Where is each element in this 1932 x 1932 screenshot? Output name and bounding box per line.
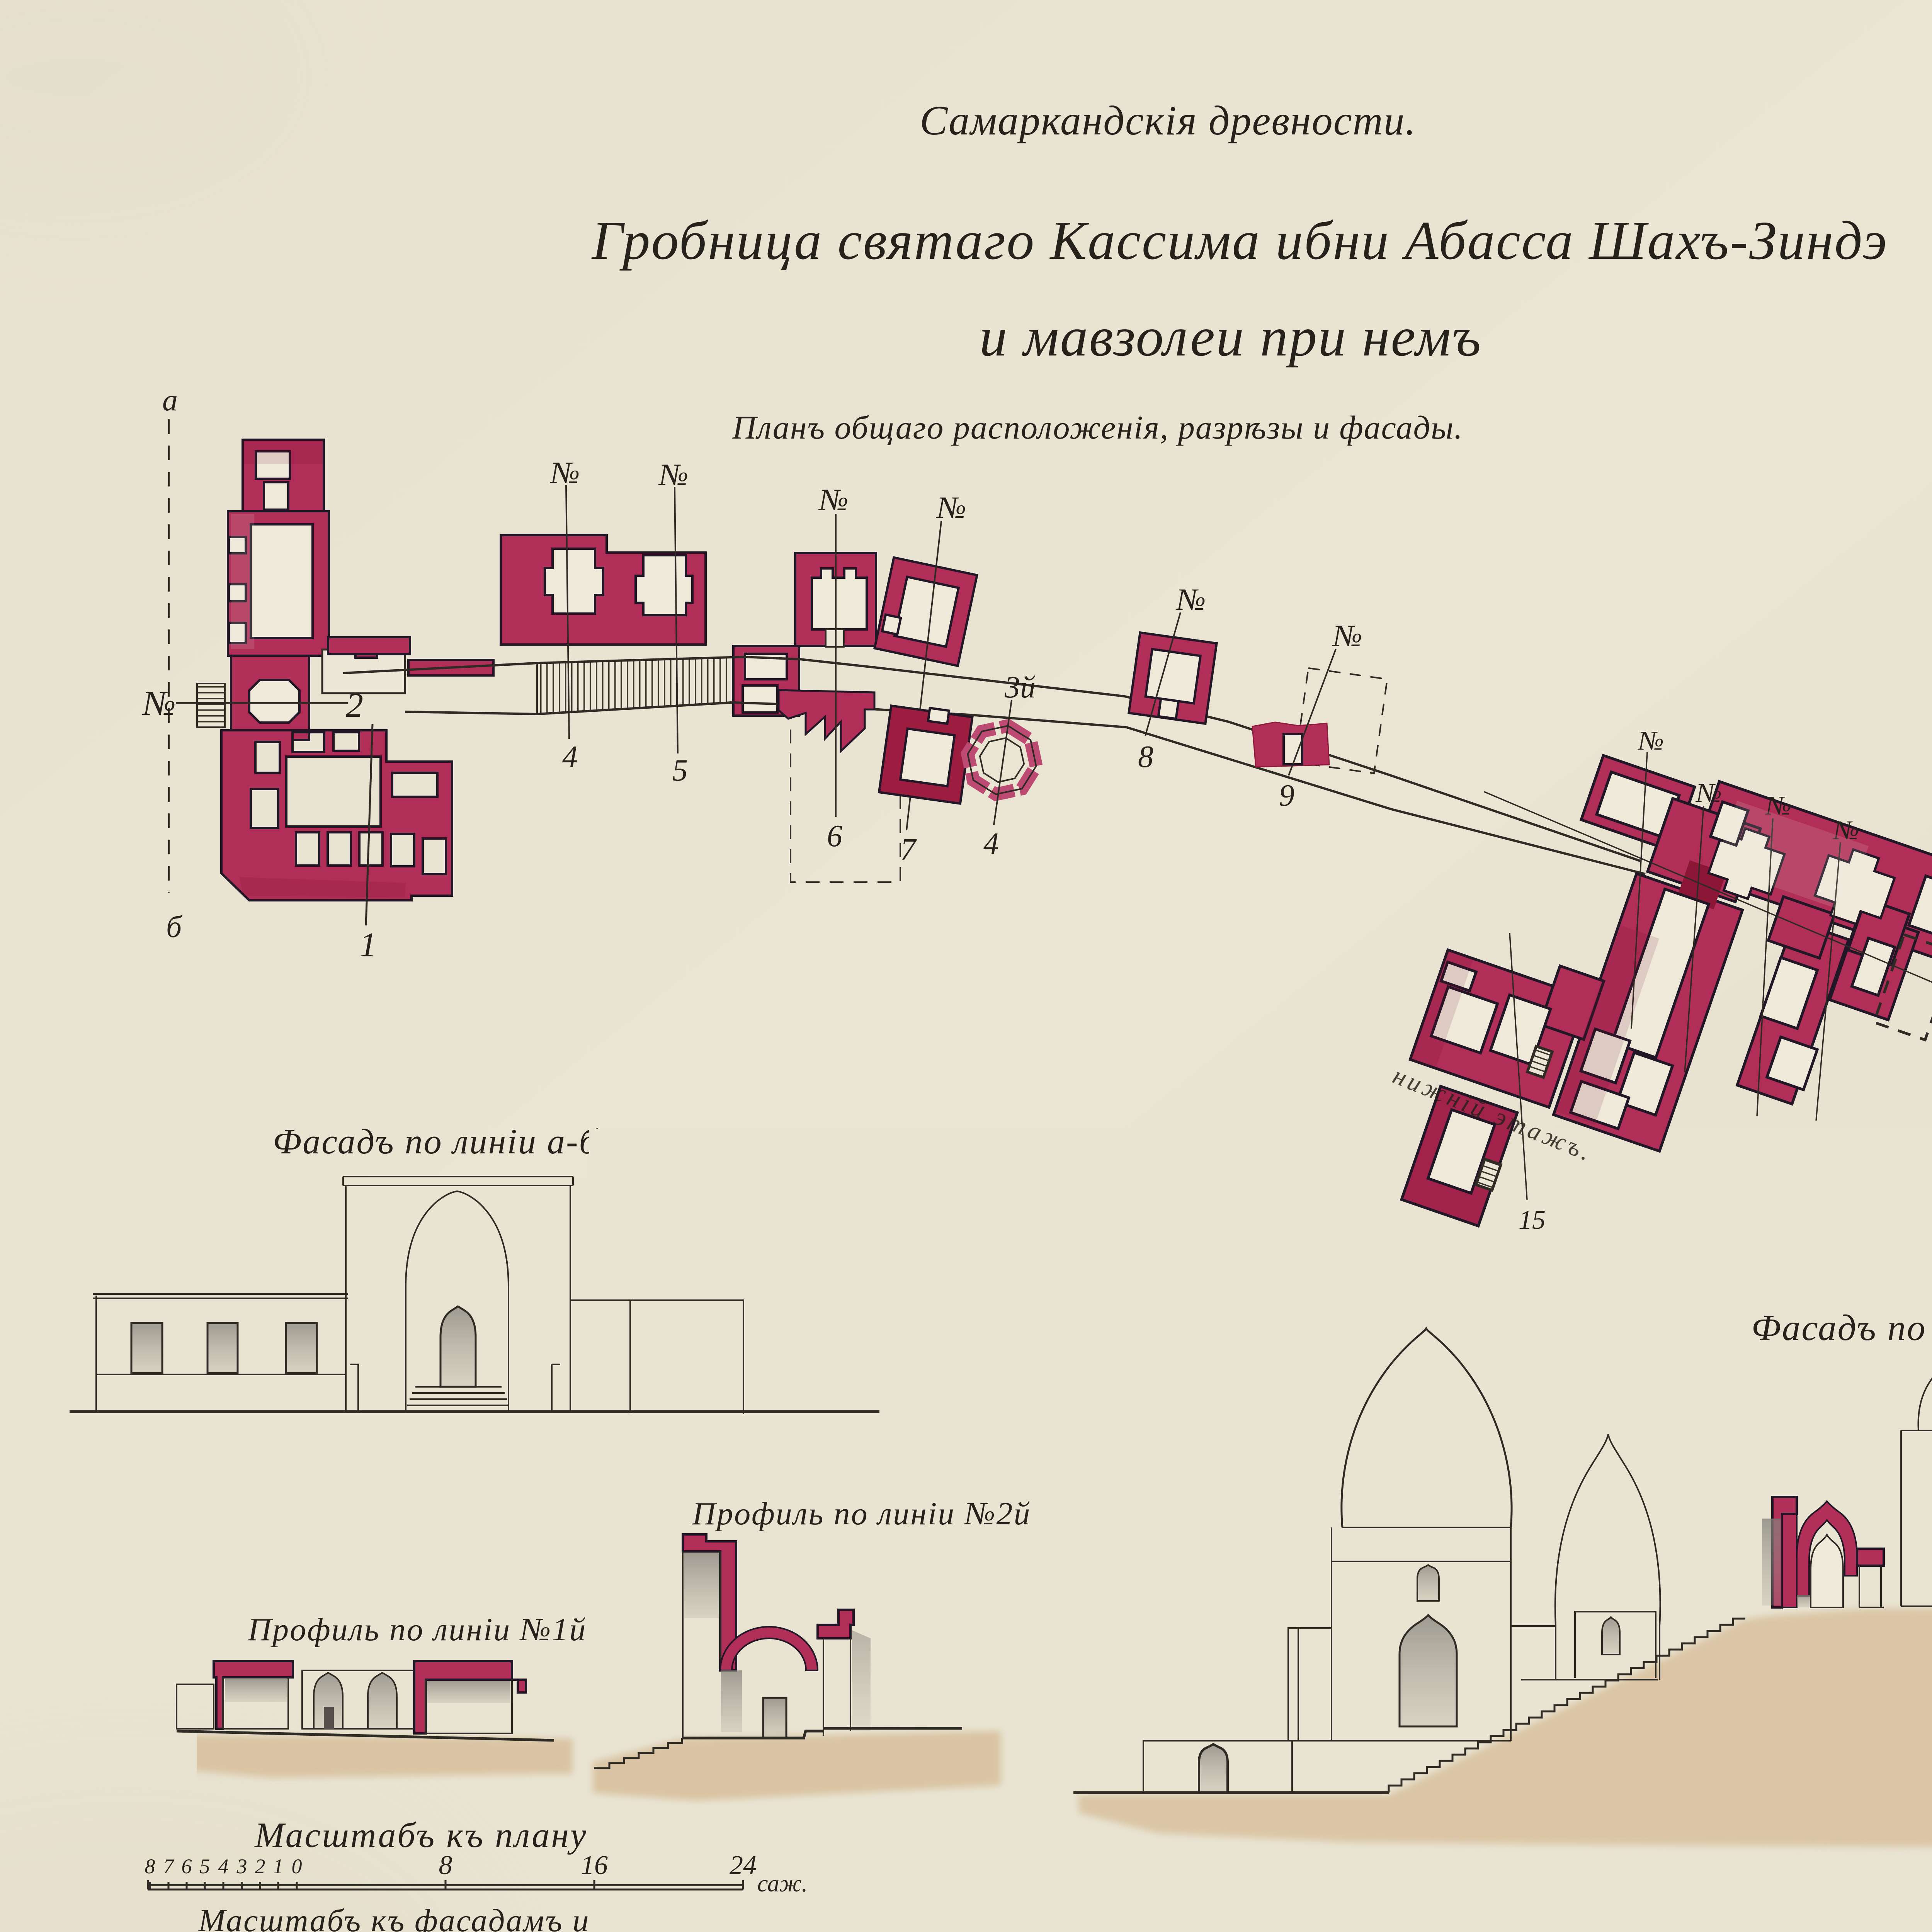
svg-text:саж.: саж. [757, 1871, 808, 1897]
svg-text:а: а [162, 383, 178, 417]
svg-text:Планъ общаго расположенія, раз: Планъ общаго расположенія, разрѣзы и фас… [732, 409, 1463, 446]
svg-text:№: № [1695, 778, 1722, 808]
svg-text:№: № [1332, 619, 1362, 653]
svg-text:3: 3 [236, 1855, 247, 1878]
svg-text:2: 2 [255, 1855, 265, 1878]
svg-text:3й: 3й [1004, 670, 1036, 704]
svg-text:№: № [1175, 583, 1206, 617]
svg-text:6: 6 [182, 1855, 192, 1878]
svg-text:Масштабъ къ фасадамъ и: Масштабъ къ фасадамъ и [198, 1903, 590, 1932]
svg-text:и мавзолеи при немъ: и мавзолеи при немъ [980, 306, 1482, 368]
svg-text:б: б [166, 910, 183, 944]
svg-text:5: 5 [200, 1855, 210, 1878]
svg-text:4: 4 [562, 740, 578, 774]
svg-text:15: 15 [1519, 1205, 1546, 1235]
svg-text:24: 24 [730, 1850, 757, 1880]
svg-text:№: № [1637, 726, 1664, 756]
svg-text:5: 5 [672, 753, 688, 787]
svg-text:4: 4 [218, 1855, 229, 1878]
svg-text:2: 2 [346, 686, 363, 724]
svg-text:№: № [142, 684, 176, 723]
svg-text:8: 8 [1138, 740, 1153, 774]
svg-text:№: № [936, 491, 966, 525]
svg-text:8: 8 [145, 1855, 155, 1878]
svg-text:Профиль по линіи №2й: Профиль по линіи №2й [692, 1496, 1031, 1532]
svg-text:Фасадъ по линіи а-б.: Фасадъ по линіи а-б. [273, 1122, 608, 1161]
svg-text:7: 7 [163, 1855, 175, 1878]
svg-text:Профиль по линіи №1й: Профиль по линіи №1й [248, 1612, 587, 1648]
svg-text:4: 4 [983, 827, 999, 861]
svg-text:0: 0 [292, 1855, 302, 1878]
svg-text:№: № [658, 458, 688, 492]
svg-text:6: 6 [827, 819, 842, 853]
svg-text:Гробница святаго Кассима ибни: Гробница святаго Кассима ибни Абасса Шах… [591, 210, 1888, 271]
svg-text:№: № [818, 483, 848, 517]
svg-text:7: 7 [900, 833, 917, 867]
svg-text:Масштабъ къ плану: Масштабъ къ плану [254, 1815, 587, 1855]
svg-text:1: 1 [359, 926, 377, 964]
svg-text:16: 16 [581, 1850, 608, 1880]
svg-text:№: № [549, 456, 580, 490]
svg-text:Фасадъ по линіи №3й: Фасадъ по линіи №3й [1752, 1307, 1932, 1348]
svg-text:1: 1 [273, 1855, 284, 1878]
svg-text:9: 9 [1279, 779, 1294, 813]
svg-text:8: 8 [439, 1850, 452, 1880]
svg-text:Самаркандскія древности.: Самаркандскія древности. [920, 98, 1416, 144]
